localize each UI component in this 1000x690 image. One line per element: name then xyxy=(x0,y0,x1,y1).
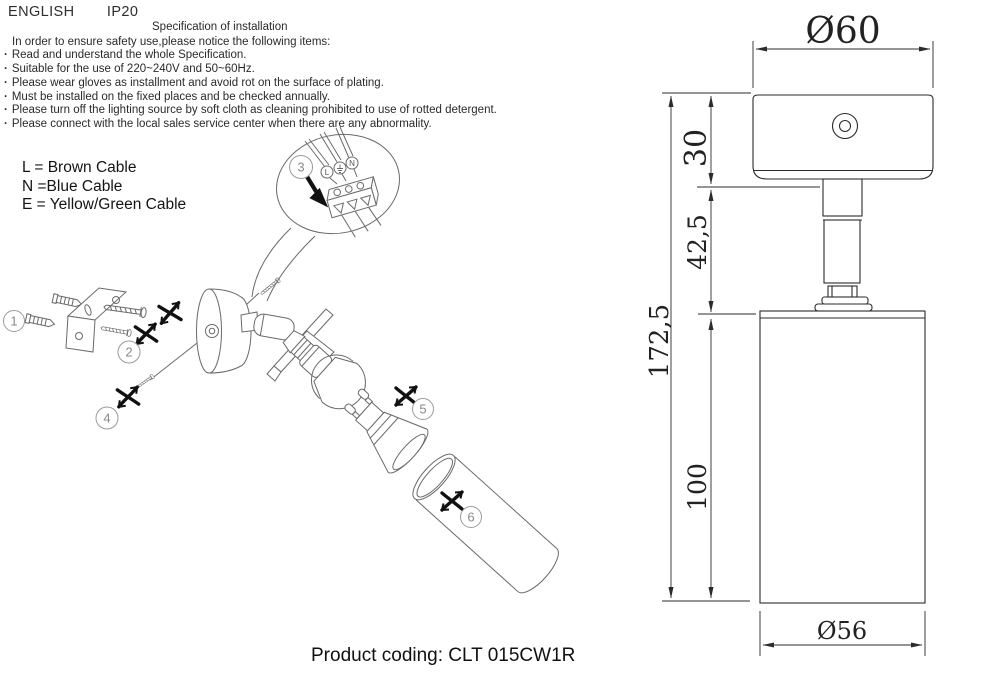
part-number-label: 6 xyxy=(467,510,474,525)
specification-block: Specification of installation In order t… xyxy=(4,21,534,132)
terminal-l-label: L xyxy=(325,168,330,177)
spec-item: Suitable for the use of 220~240V and 50~… xyxy=(4,63,534,77)
callout-arrow-icon xyxy=(306,175,324,203)
dim-stem-height: 42,5 xyxy=(683,214,712,270)
part-marker-6: 6 xyxy=(461,507,482,528)
cylinder-shade xyxy=(406,448,564,599)
language-label: ENGLISH xyxy=(8,4,74,20)
spec-item: Read and understand the whole Specificat… xyxy=(4,49,534,63)
spec-title: Specification of installation xyxy=(152,21,534,35)
part-marker-3: 3 xyxy=(290,156,313,179)
part-number-label: 5 xyxy=(419,402,426,417)
detail-balloon xyxy=(252,123,409,301)
terminal-block xyxy=(324,177,388,242)
dim-top-diameter: Ø60 xyxy=(805,11,880,52)
part-marker-1: 1 xyxy=(4,311,25,332)
part-number-label: 3 xyxy=(297,160,304,175)
canopy-front-view xyxy=(753,95,933,179)
product-coding: Product coding: CLT 015CW1R xyxy=(311,645,575,667)
part-marker-5: 5 xyxy=(413,399,434,420)
spec-item: Please turn off the lighting source by s… xyxy=(4,104,534,118)
spec-item: Please wear gloves as installment and av… xyxy=(4,77,534,91)
dim-body-height: 100 xyxy=(683,463,712,511)
dim-canopy-height: 30 xyxy=(679,129,714,167)
dim-body-diameter: Ø56 xyxy=(817,617,867,645)
spec-item: Must be installed on the fixed places an… xyxy=(4,91,534,105)
ip-rating-label: IP20 xyxy=(107,4,138,20)
part-marker-4: 4 xyxy=(96,407,118,429)
part-number-label: 4 xyxy=(103,411,110,426)
part-marker-2: 2 xyxy=(118,341,140,363)
dim-overall-height: 172,5 xyxy=(645,304,675,378)
stem-front-view xyxy=(815,179,872,311)
dimension-drawing: Ø60 30 42,5 172,5 100 Ø56 xyxy=(640,10,1000,660)
part-number-label: 1 xyxy=(10,314,17,329)
mounting-bracket xyxy=(66,288,126,352)
page-header: ENGLISH IP20 xyxy=(8,4,138,20)
fixture-outline xyxy=(753,95,933,603)
exploded-assembly-diagram: 1 2 3 4 5 xyxy=(0,120,610,620)
dimension-labels: Ø60 30 42,5 172,5 100 Ø56 xyxy=(645,11,881,645)
cylinder-body-front-view xyxy=(760,311,925,603)
part-number-label: 2 xyxy=(125,345,132,360)
spec-intro: In order to ensure safety use,please not… xyxy=(12,36,534,50)
installation-spec-page: ENGLISH IP20 Specification of installati… xyxy=(0,0,1000,690)
terminal-n-label: N xyxy=(349,159,355,168)
